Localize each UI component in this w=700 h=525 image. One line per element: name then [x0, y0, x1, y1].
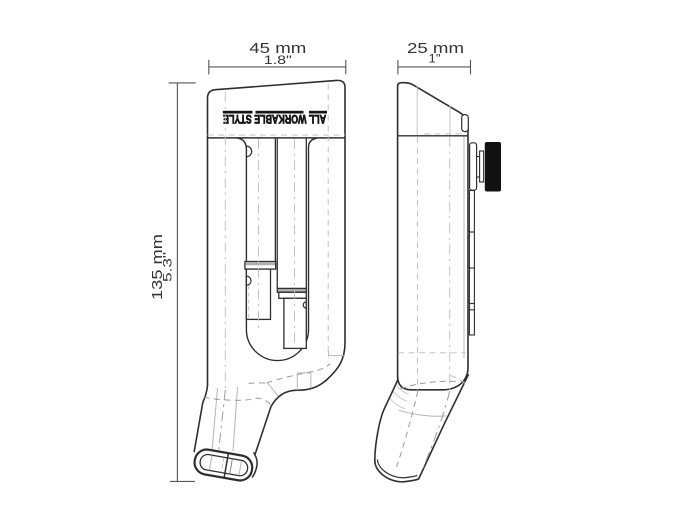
svg-text:ALL WORKABLE STYLE: ALL WORKABLE STYLE	[223, 112, 326, 126]
svg-text:5.3": 5.3"	[160, 252, 174, 282]
svg-text:1": 1"	[429, 52, 441, 66]
svg-text:1.8": 1.8"	[264, 53, 292, 67]
